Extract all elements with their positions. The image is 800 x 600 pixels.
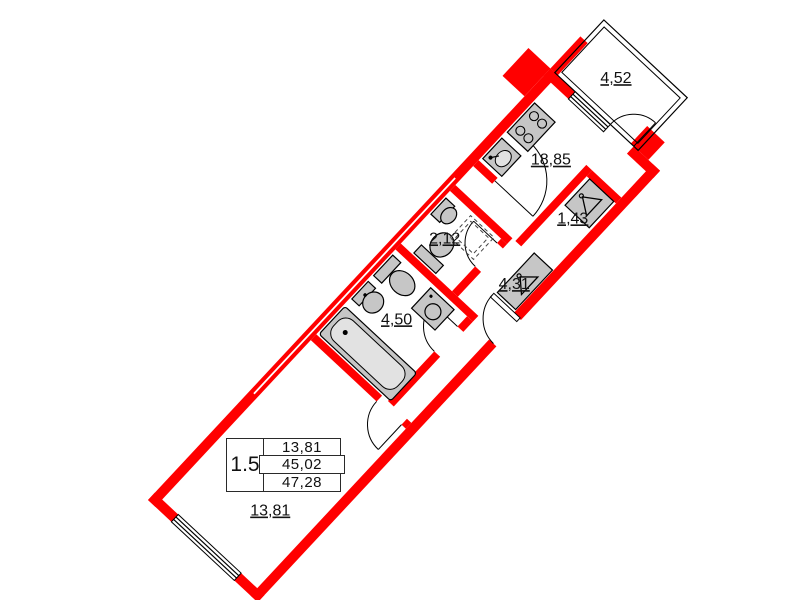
spec-apartment-area-cell: 45,02 [259,455,345,474]
label-kitchen-living: 18,85 [531,152,571,169]
label-balcony: 4,52 [600,70,631,87]
floor-plan-page: { "plan": { "title": "apartment-floor-pl… [0,0,800,600]
floor-plan-canvas: 13,81 4,50 2,12 4,31 1,43 18,85 4,52 [0,0,800,600]
wall-top-extension [550,36,587,75]
label-living-room: 13,81 [250,503,290,520]
rotated-plan: 13,81 4,50 2,12 4,31 1,43 18,85 4,52 [126,0,709,600]
wall-wc-bottom-a [452,266,481,296]
label-corridor: 4,31 [499,276,530,293]
label-entry-hall: 1,43 [557,210,588,227]
spec-total-area-cell: 47,28 [263,473,341,492]
window-living-room [171,515,241,581]
label-wc: 2,12 [429,230,460,247]
spec-living-area-cell: 13,81 [263,438,341,456]
label-bathroom: 4,50 [381,311,412,328]
